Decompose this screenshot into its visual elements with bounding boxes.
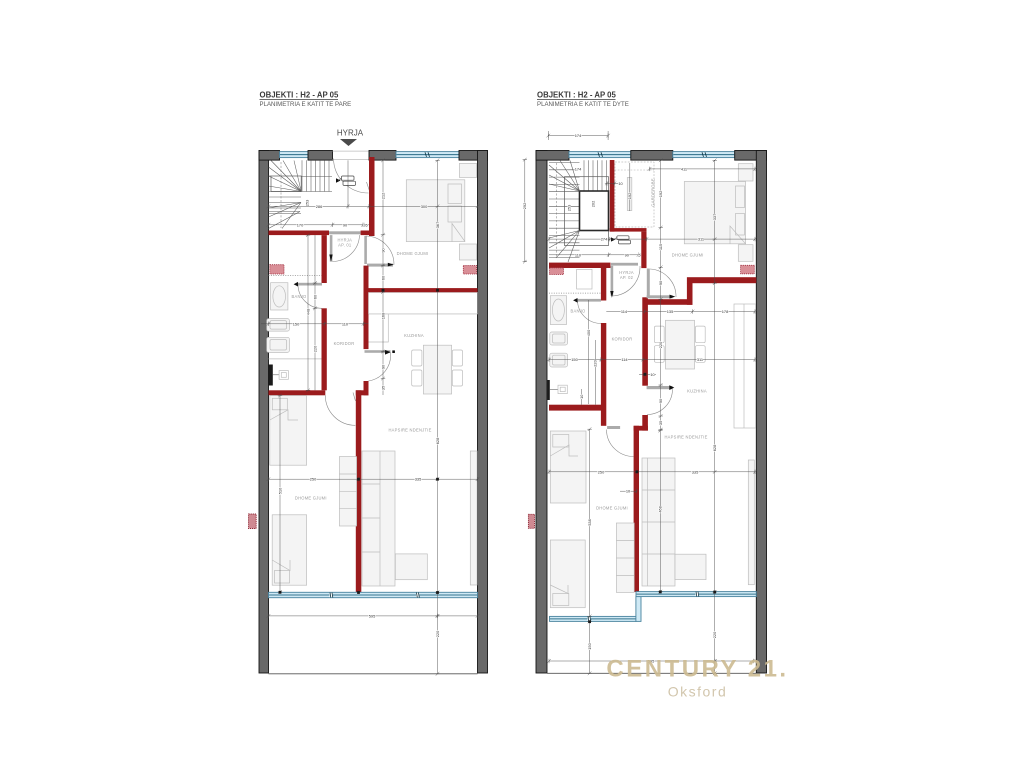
svg-text:135: 135 bbox=[667, 309, 674, 314]
svg-text:150: 150 bbox=[587, 642, 592, 649]
svg-text:538: 538 bbox=[587, 519, 592, 526]
svg-text:174: 174 bbox=[575, 166, 582, 171]
svg-text:250: 250 bbox=[310, 477, 317, 482]
svg-text:35: 35 bbox=[658, 421, 663, 425]
svg-text:595: 595 bbox=[369, 613, 376, 618]
svg-text:HYRJA: HYRJA bbox=[337, 129, 364, 138]
svg-text:BANJO: BANJO bbox=[292, 294, 307, 299]
svg-text:114: 114 bbox=[621, 357, 628, 362]
svg-text:510: 510 bbox=[277, 487, 282, 494]
svg-text:110: 110 bbox=[575, 252, 582, 257]
svg-text:411: 411 bbox=[681, 166, 687, 171]
svg-text:PLANIMETRIA E KATIT TE DYTE: PLANIMETRIA E KATIT TE DYTE bbox=[537, 101, 629, 108]
svg-text:DHOME GJUMI: DHOME GJUMI bbox=[672, 252, 704, 257]
svg-text:KUZHINA: KUZHINA bbox=[404, 333, 424, 338]
svg-text:35: 35 bbox=[380, 386, 385, 390]
svg-text:311: 311 bbox=[698, 237, 704, 242]
svg-text:5: 5 bbox=[638, 252, 640, 257]
svg-text:174: 174 bbox=[575, 133, 582, 138]
svg-text:253: 253 bbox=[305, 200, 310, 207]
svg-text:628: 628 bbox=[435, 438, 440, 445]
svg-text:HAPSIRE NDENJTIE: HAPSIRE NDENJTIE bbox=[664, 435, 707, 440]
svg-text:311: 311 bbox=[697, 357, 703, 362]
svg-text:202: 202 bbox=[591, 201, 596, 208]
svg-text:286: 286 bbox=[316, 204, 323, 209]
svg-text:178: 178 bbox=[722, 309, 729, 314]
svg-text:335: 335 bbox=[415, 477, 422, 482]
svg-text:HAPSIRE NDENJTIE: HAPSIRE NDENJTIE bbox=[388, 428, 431, 433]
svg-text:335: 335 bbox=[692, 469, 699, 474]
svg-text:115: 115 bbox=[658, 244, 663, 250]
svg-text:PLANIMETRIA E KATIT TE PARE: PLANIMETRIA E KATIT TE PARE bbox=[260, 101, 352, 108]
svg-text:337: 337 bbox=[712, 214, 717, 221]
svg-text:114: 114 bbox=[621, 309, 628, 314]
svg-text:KUZHINA: KUZHINA bbox=[687, 389, 707, 394]
svg-text:KORIDOR: KORIDOR bbox=[612, 337, 633, 342]
svg-text:AP. 02: AP. 02 bbox=[620, 275, 634, 280]
svg-text:OBJEKTI : H2 - AP 05: OBJEKTI : H2 - AP 05 bbox=[260, 91, 340, 100]
svg-text:170: 170 bbox=[297, 222, 304, 227]
svg-text:468: 468 bbox=[658, 506, 663, 513]
svg-text:26: 26 bbox=[363, 222, 367, 227]
svg-text:AP. 01: AP. 01 bbox=[338, 243, 352, 248]
svg-text:DHOME GJUMI: DHOME GJUMI bbox=[596, 506, 628, 511]
svg-text:220: 220 bbox=[658, 341, 663, 348]
svg-text:192: 192 bbox=[658, 191, 663, 198]
svg-text:192: 192 bbox=[627, 193, 632, 200]
svg-text:DHOME GJUMI: DHOME GJUMI bbox=[397, 251, 429, 256]
svg-text:292: 292 bbox=[522, 203, 527, 210]
svg-text:BANJO: BANJO bbox=[571, 309, 586, 314]
svg-text:150: 150 bbox=[293, 321, 300, 326]
svg-text:300: 300 bbox=[421, 204, 428, 209]
svg-text:220: 220 bbox=[712, 631, 717, 638]
svg-text:367: 367 bbox=[435, 222, 440, 229]
svg-text:448: 448 bbox=[305, 309, 310, 316]
svg-text:220: 220 bbox=[593, 359, 598, 366]
svg-text:GARDEROBE: GARDEROBE bbox=[650, 178, 655, 206]
svg-text:KORIDOR: KORIDOR bbox=[334, 341, 355, 346]
svg-text:212: 212 bbox=[380, 193, 385, 200]
svg-text:Oksford: Oksford bbox=[668, 684, 728, 700]
svg-text:628: 628 bbox=[712, 445, 717, 452]
svg-text:110: 110 bbox=[342, 321, 349, 326]
svg-text:250: 250 bbox=[598, 469, 605, 474]
svg-text:DHOME GJUMI: DHOME GJUMI bbox=[295, 496, 327, 501]
svg-text:220: 220 bbox=[312, 345, 317, 352]
svg-text:168: 168 bbox=[380, 313, 385, 320]
svg-text:CENTURY 21.: CENTURY 21. bbox=[606, 656, 788, 683]
svg-text:OBJEKTI : H2 - AP 05: OBJEKTI : H2 - AP 05 bbox=[537, 91, 617, 100]
svg-text:274: 274 bbox=[601, 237, 608, 242]
svg-text:253: 253 bbox=[567, 205, 572, 212]
svg-text:150: 150 bbox=[571, 357, 578, 362]
svg-text:220: 220 bbox=[435, 630, 440, 637]
svg-text:400: 400 bbox=[586, 329, 591, 336]
